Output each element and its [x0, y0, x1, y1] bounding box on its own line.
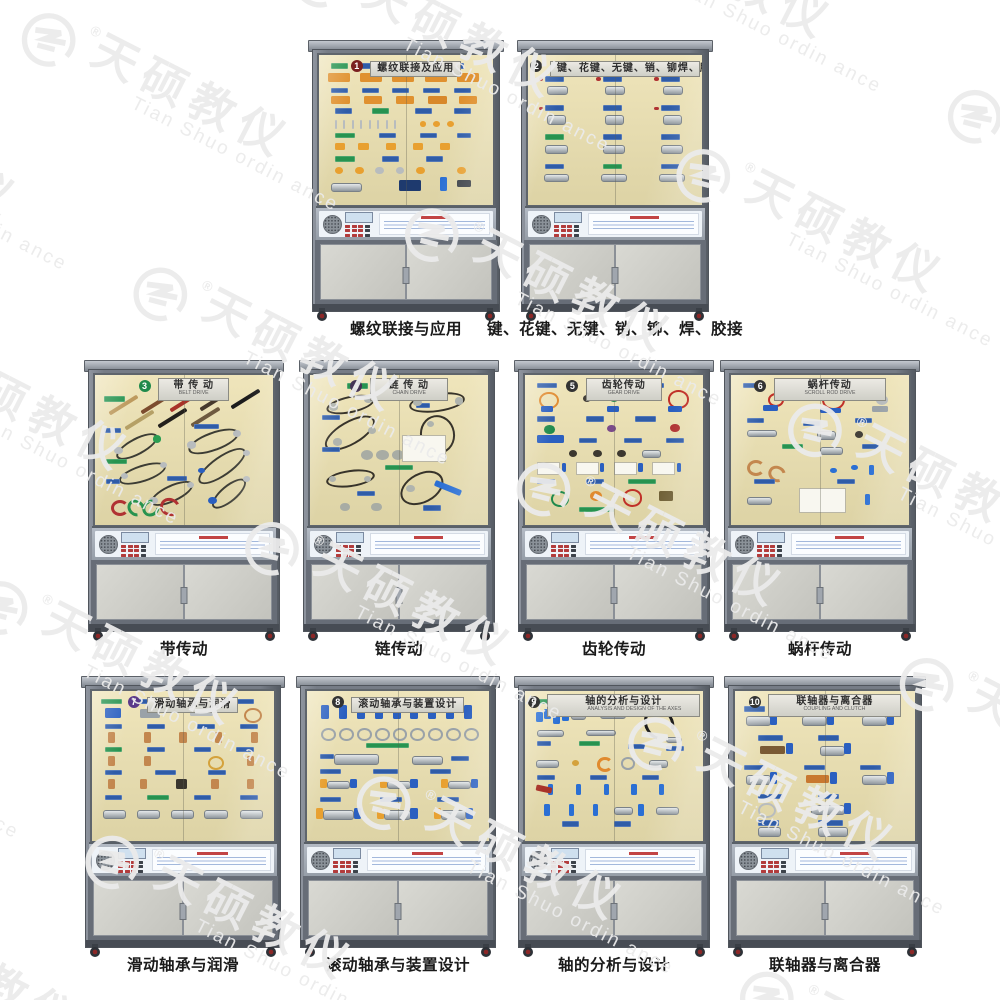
plinth: [519, 624, 709, 631]
speaker-grille: [314, 535, 333, 554]
control-panel-inner: [92, 847, 274, 873]
display-cabinet-4: 4 链 传 动 CHAIN DRIVE: [303, 360, 495, 632]
watermark: ® 天硕教仪 Tian Shuo ordin ance: [0, 619, 44, 844]
title-plate-row: 5 齿轮传动 GEAR DRIVE: [525, 378, 703, 402]
display-cabinet-7: 7 滑动轴承与润滑: [85, 676, 281, 948]
left-door: [308, 880, 398, 936]
keypad: [551, 861, 579, 873]
title-plate-row: 2 键、花键、无键、销、铆焊、胶接: [528, 58, 702, 77]
display-cabinet-6: 6 蜗杆传动 SCROLL ROD DRIVE: [724, 360, 916, 632]
title-plate-row: 3 带 传 动 BELT DRIVE: [95, 378, 273, 402]
title-plate-row: 10 联轴器与离合器 COUPLING AND CLUTCH: [735, 694, 915, 718]
instruction-panel: [585, 849, 700, 871]
cabinet-showcase: 2 键、花键、无键、销、铆焊、胶接: [526, 53, 704, 207]
display-cabinet-10: 10 联轴器与离合器 COUPLING AND CLUTCH: [728, 676, 922, 948]
cabinet-body: 9 轴的分析与设计 ANALYSIS AND DESIGN OF THE AXE…: [518, 685, 710, 948]
speaker-grille: [311, 851, 330, 870]
control-panel-inner: [319, 211, 493, 237]
keypad: [336, 545, 364, 557]
caster-wheel: [479, 628, 491, 641]
control-panel: [89, 842, 277, 878]
control-module: [551, 532, 579, 557]
lcd-display: [551, 848, 579, 859]
plate-subtitle: CHAIN DRIVE: [392, 391, 426, 395]
keypad: [121, 545, 149, 557]
caster-wheel: [304, 944, 316, 957]
instruction-panel: [791, 533, 906, 555]
cabinet-body: 10 联轴器与离合器 COUPLING AND CLUTCH: [728, 685, 922, 948]
left-door: [736, 880, 825, 936]
number-badge: 6: [754, 380, 766, 392]
cabinet-body: 1 螺纹联接及应用: [312, 49, 500, 312]
speaker-grille: [735, 535, 754, 554]
cabinet-showcase: 3 带 传 动 BELT DRIVE: [93, 373, 275, 527]
brand-logo-icon: [281, 0, 359, 20]
watermark-text: 天硕教仪 Tian Shuo ordin ance: [731, 162, 1000, 353]
cabinet-caption-7: 滑动轴承与润滑: [127, 953, 239, 975]
brand-name-cn: 天硕教仪: [0, 85, 92, 260]
keypad: [333, 861, 361, 873]
cabinet-body: 2 键、花键、无键、销、铆焊、胶接: [521, 49, 709, 312]
control-panel-inner: [95, 531, 273, 557]
cabinet-caption-2: 键、花键、无键、销、铆、焊、胶接: [487, 317, 743, 339]
instruction-panel: [795, 849, 912, 871]
watermark-text: 天硕教仪 Tian Shuo ordin ance: [0, 653, 44, 844]
registered-mark: ®: [199, 276, 215, 295]
control-module: [757, 532, 785, 557]
plate-subtitle: ANALYSIS AND DESIGN OF THE AXES: [588, 707, 660, 711]
control-panel: [92, 526, 276, 562]
cabinet-showcase: 1 螺纹联接及应用: [317, 53, 495, 207]
cabinet-caption-10: 联轴器与离合器: [769, 953, 881, 975]
registered-mark: ®: [966, 667, 982, 686]
right-door: [820, 564, 908, 620]
brand-name-cn: 天硕教仪: [0, 653, 44, 828]
cabinet-body: 4 链 传 动 CHAIN DRIVE: [303, 369, 495, 632]
door-handle: [403, 267, 410, 284]
display-cabinet-5: 5 齿轮传动 GEAR DRIVE: [518, 360, 710, 632]
plinth: [519, 940, 709, 947]
storage-doors: [727, 560, 913, 625]
left-door: [732, 564, 820, 620]
control-module: [118, 848, 146, 873]
display-cabinet-8: 8 滚动轴承与装置设计: [300, 676, 496, 948]
instruction-panel: [152, 849, 271, 871]
watermark-text: 天硕教仪 Tian Shuo ordin ance: [954, 671, 1000, 862]
cabinet-showcase: 6 蜗杆传动 SCROLL ROD DRIVE: [729, 373, 911, 527]
brand-name-cn: 天硕教仪: [739, 162, 1000, 337]
caster-wheel: [694, 944, 706, 957]
right-door: [399, 564, 487, 620]
title-plate-row: 7 滑动轴承与润滑: [92, 694, 274, 713]
watermark: ® 天硕教仪 Tian Shuo ordin ance: [824, 0, 1000, 39]
registered-mark: ®: [806, 980, 822, 999]
instruction-panel: [379, 213, 490, 235]
plate-subtitle: SCROLL ROD DRIVE: [804, 391, 855, 395]
lcd-display: [118, 848, 146, 859]
watermark: ® 天硕教仪 Tian Shuo ordin ance: [0, 51, 92, 276]
watermark: ® 天硕教仪 Tian Shuo ordin ance: [936, 69, 1000, 294]
glass-reflection: [528, 55, 702, 205]
control-panel: [525, 206, 705, 242]
brand-name-latin: Tian Shuo ordin ance: [0, 974, 135, 1000]
brand-name-cn: 天硕教仪: [962, 671, 1000, 846]
caster-wheel: [92, 628, 104, 641]
control-panel-inner: [310, 531, 488, 557]
title-plate: 蜗杆传动 SCROLL ROD DRIVE: [774, 378, 886, 401]
registered-mark: ®: [88, 22, 104, 41]
cabinet-showcase: 5 齿轮传动 GEAR DRIVE: [523, 373, 705, 527]
brand-logo-icon: [936, 78, 1000, 156]
control-panel: [307, 526, 491, 562]
registered-mark: ®: [742, 158, 758, 177]
number-badge: 9: [528, 696, 540, 708]
registered-mark: ®: [39, 590, 55, 609]
caster-wheel: [480, 944, 492, 957]
instruction-panel: [588, 213, 699, 235]
control-panel-inner: [525, 531, 703, 557]
door-handle: [612, 267, 619, 284]
title-plate: 滑动轴承与润滑: [147, 697, 238, 713]
number-badge: 2: [530, 60, 542, 72]
cabinet-caption-6: 蜗杆传动: [788, 637, 852, 659]
plate-title: 滚动轴承与装置设计: [358, 699, 457, 710]
brand-name-latin: Tian Shuo ordin ance: [0, 152, 71, 276]
door-handle: [180, 903, 187, 920]
cabinet-showcase: 8 滚动轴承与装置设计: [305, 689, 491, 843]
number-badge: 3: [139, 380, 151, 392]
display-cabinet-2: 2 键、花键、无键、销、铆焊、胶接: [521, 40, 709, 312]
cabinet-caption-4: 链传动: [375, 637, 423, 659]
brand-name-latin: Tian Shuo ordin ance: [0, 720, 23, 844]
title-plate: 齿轮传动 GEAR DRIVE: [586, 378, 662, 401]
caster-wheel: [265, 944, 277, 957]
control-panel: [304, 842, 492, 878]
caster-wheel: [732, 944, 744, 957]
title-plate-row: 9 轴的分析与设计 ANALYSIS AND DESIGN OF THE AXE…: [525, 694, 703, 718]
door-handle: [822, 903, 829, 920]
number-badge: 5: [566, 380, 578, 392]
instruction-panel: [370, 533, 485, 555]
control-panel: [728, 526, 912, 562]
speaker-grille: [323, 215, 342, 234]
plate-title: 滑动轴承与润滑: [154, 699, 231, 710]
control-panel: [522, 842, 706, 878]
control-panel: [316, 206, 496, 242]
brand-name-cn: 天硕教仪: [802, 984, 1000, 1000]
caster-wheel: [694, 628, 706, 641]
storage-doors: [91, 560, 277, 625]
cabinet-caption-8: 滚动轴承与装置设计: [326, 953, 470, 975]
plate-subtitle: BELT DRIVE: [179, 391, 209, 395]
right-door: [184, 564, 272, 620]
storage-doors: [303, 876, 493, 941]
title-plate: 轴的分析与设计 ANALYSIS AND DESIGN OF THE AXES: [547, 694, 700, 717]
glass-reflection: [319, 55, 493, 205]
lcd-display: [345, 212, 373, 223]
lcd-display: [551, 532, 579, 543]
control-panel-inner: [528, 211, 702, 237]
watermark: ® 天硕教仪 Tian Shuo ordin ance: [10, 0, 364, 217]
speaker-grille: [96, 851, 115, 870]
plinth: [725, 624, 915, 631]
glass-reflection: [92, 691, 274, 841]
plinth: [522, 304, 708, 311]
door-handle: [181, 587, 188, 604]
plinth: [301, 940, 495, 947]
lcd-display: [757, 532, 785, 543]
watermark-text: 天硕教仪 Tian Shuo ordin ance: [0, 85, 92, 276]
cabinet-showcase: 10 联轴器与离合器 COUPLING AND CLUTCH: [733, 689, 917, 843]
lcd-display: [333, 848, 361, 859]
right-door: [615, 244, 701, 300]
display-cabinet-1: 1 螺纹联接及应用: [312, 40, 500, 312]
title-plate-row: 4 链 传 动 CHAIN DRIVE: [310, 378, 488, 402]
keypad: [345, 225, 373, 237]
title-plate: 键、花键、无键、销、铆焊、胶接: [550, 61, 700, 77]
right-door: [614, 564, 702, 620]
lcd-display: [554, 212, 582, 223]
door-handle: [611, 587, 618, 604]
plinth: [729, 940, 921, 947]
control-module: [551, 848, 579, 873]
plate-subtitle: GEAR DRIVE: [608, 391, 640, 395]
keypad: [554, 225, 582, 237]
speaker-grille: [529, 851, 548, 870]
title-plate: 链 传 动 CHAIN DRIVE: [370, 378, 448, 401]
left-door: [526, 564, 614, 620]
control-module: [333, 848, 361, 873]
right-door: [406, 244, 492, 300]
control-module: [336, 532, 364, 557]
plate-subtitle: COUPLING AND CLUTCH: [804, 707, 866, 711]
plinth: [304, 624, 494, 631]
control-module: [121, 532, 149, 557]
cabinet-showcase: 4 链 传 动 CHAIN DRIVE: [308, 373, 490, 527]
control-panel-inner: [525, 847, 703, 873]
title-plate: 螺纹联接及应用: [370, 61, 461, 77]
instruction-panel: [367, 849, 486, 871]
brand-name-latin: Tian Shuo ordin ance: [942, 0, 1000, 39]
storage-doors: [521, 876, 707, 941]
plate-title: 螺纹联接及应用: [377, 63, 454, 74]
plinth: [89, 624, 279, 631]
keypad: [118, 861, 146, 873]
control-panel-inner: [735, 847, 915, 873]
cabinet-caption-9: 轴的分析与设计: [558, 953, 670, 975]
number-badge: 10: [749, 696, 761, 708]
door-handle: [817, 587, 824, 604]
control-panel: [522, 526, 706, 562]
lcd-display: [336, 532, 364, 543]
cabinet-body: 6 蜗杆传动 SCROLL ROD DRIVE: [724, 369, 916, 632]
brand-logo-icon: [0, 569, 40, 647]
left-door: [526, 880, 614, 936]
control-panel-inner: [307, 847, 489, 873]
caster-wheel: [522, 944, 534, 957]
number-badge: 8: [332, 696, 344, 708]
left-door: [93, 880, 183, 936]
caster-wheel: [316, 308, 328, 321]
left-door: [320, 244, 406, 300]
brand-name-cn: 天硕教仪: [899, 0, 1000, 23]
control-module: [761, 848, 789, 873]
left-door: [529, 244, 615, 300]
watermark-text: 天硕教仪 Tian Shuo ordin ance: [891, 0, 1000, 39]
left-door: [311, 564, 399, 620]
left-door: [96, 564, 184, 620]
keypad: [761, 861, 789, 873]
number-badge: 1: [351, 60, 363, 72]
number-badge: 7: [128, 696, 140, 708]
caster-wheel: [906, 944, 918, 957]
number-badge: 4: [350, 380, 362, 392]
right-door: [183, 880, 273, 936]
title-plate: 带 传 动 BELT DRIVE: [158, 378, 229, 401]
cabinet-showcase: 9 轴的分析与设计 ANALYSIS AND DESIGN OF THE AXE…: [523, 689, 705, 843]
title-plate: 滚动轴承与装置设计: [351, 697, 464, 713]
instruction-panel: [585, 533, 700, 555]
cabinet-showcase: 7 滑动轴承与润滑: [90, 689, 276, 843]
control-module: [554, 212, 582, 237]
brand-name-latin: Tian Shuo ordin ance: [128, 93, 343, 217]
title-plate-row: 1 螺纹联接及应用: [319, 58, 493, 77]
caster-wheel: [307, 628, 319, 641]
storage-doors: [521, 560, 707, 625]
cabinet-body: 7 滑动轴承与润滑: [85, 685, 281, 948]
storage-doors: [524, 240, 706, 305]
caster-wheel: [522, 628, 534, 641]
cabinet-body: 3 带 传 动 BELT DRIVE: [88, 369, 280, 632]
storage-doors: [306, 560, 492, 625]
control-panel: [732, 842, 918, 878]
lcd-display: [761, 848, 789, 859]
plate-title: 键、花键、无键、销、铆焊、胶接: [557, 63, 693, 74]
plinth: [86, 940, 280, 947]
speaker-grille: [739, 851, 758, 870]
storage-doors: [315, 240, 497, 305]
cabinet-body: 5 齿轮传动 GEAR DRIVE: [518, 369, 710, 632]
speaker-grille: [529, 535, 548, 554]
title-plate: 联轴器与离合器 COUPLING AND CLUTCH: [768, 694, 901, 717]
plinth: [313, 304, 499, 311]
caster-wheel: [900, 628, 912, 641]
caster-wheel: [264, 628, 276, 641]
caster-wheel: [89, 944, 101, 957]
title-plate-row: 8 滚动轴承与装置设计: [307, 694, 489, 713]
control-panel-inner: [731, 531, 909, 557]
watermark-text: 天硕教仪 Tian Shuo ordin ance: [794, 984, 1000, 1000]
lcd-display: [121, 532, 149, 543]
storage-doors: [731, 876, 919, 941]
control-module: [345, 212, 373, 237]
door-handle: [395, 903, 402, 920]
door-handle: [611, 903, 618, 920]
brand-logo-icon: [10, 1, 88, 79]
caster-wheel: [728, 628, 740, 641]
cabinet-body: 8 滚动轴承与装置设计: [300, 685, 496, 948]
cabinet-caption-5: 齿轮传动: [582, 637, 646, 659]
storage-doors: [88, 876, 278, 941]
keypad: [757, 545, 785, 557]
brand-logo-icon: [121, 255, 199, 333]
right-door: [614, 880, 702, 936]
glass-reflection: [307, 691, 489, 841]
speaker-grille: [532, 215, 551, 234]
right-door: [825, 880, 914, 936]
right-door: [398, 880, 488, 936]
display-cabinet-9: 9 轴的分析与设计 ANALYSIS AND DESIGN OF THE AXE…: [518, 676, 710, 948]
title-plate-row: 6 蜗杆传动 SCROLL ROD DRIVE: [731, 378, 909, 402]
cabinet-caption-3: 带传动: [160, 637, 208, 659]
keypad: [551, 545, 579, 557]
cabinet-caption-1: 螺纹联接与应用: [350, 317, 462, 339]
display-cabinet-3: 3 带 传 动 BELT DRIVE: [88, 360, 280, 632]
door-handle: [396, 587, 403, 604]
brand-name-latin: Tian Shuo ordin ance: [782, 229, 997, 353]
product-collage: 1 螺纹联接及应用: [0, 0, 1000, 1000]
instruction-panel: [155, 533, 270, 555]
speaker-grille: [99, 535, 118, 554]
